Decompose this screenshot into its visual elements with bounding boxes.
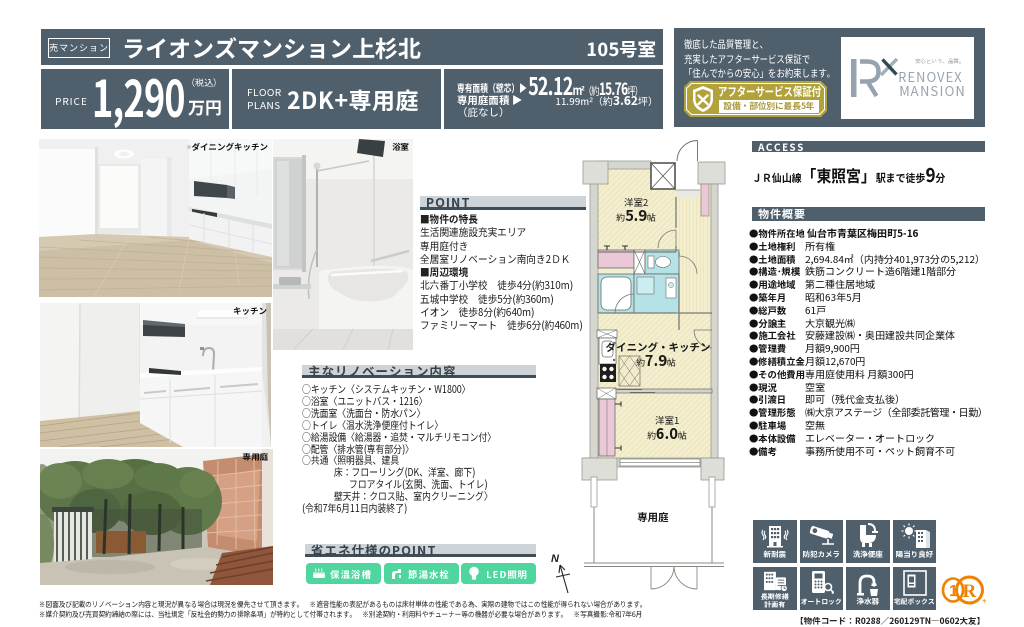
svg-text:R: R — [963, 581, 977, 602]
svg-text:安心という、品質。: 安心という、品質。 — [915, 57, 965, 65]
svg-text:N: N — [551, 553, 560, 565]
svg-text:+: + — [982, 596, 987, 607]
svg-text:専用庭: 専用庭 — [637, 510, 669, 525]
svg-text:MANSION: MANSION — [899, 81, 966, 100]
